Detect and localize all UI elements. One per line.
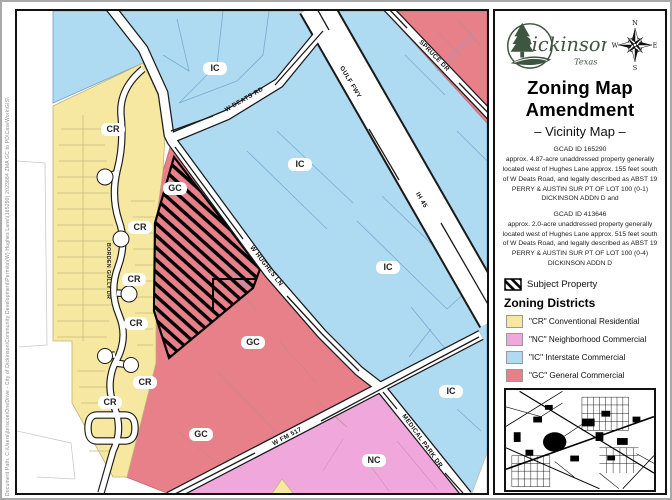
map-disclaimer: The City of Dickinson Texas makes no war… [495, 497, 665, 500]
map-title: Zoning Map Amendment [495, 77, 665, 121]
cr-color-swatch [506, 315, 523, 328]
zone-label-cr: CR [122, 273, 146, 286]
gcad-desc-1: approx. 4.87-acre unaddressed property g… [502, 155, 658, 204]
zoning-districts-header: Zoning Districts [504, 296, 665, 310]
zone-label-cr: CR [128, 221, 152, 234]
zone-label-gc: GC [241, 336, 265, 349]
legend-item-gc: "GC" General Commercial [506, 369, 665, 382]
zoning-map-page: Document Path: C:\Users\jbriscoe\OneDriv… [0, 0, 672, 500]
legend-label-cr: "CR" Conventional Residential [529, 317, 640, 326]
zone-label-cr: CR [124, 317, 148, 330]
zone-label-cr: CR [101, 123, 125, 136]
compass-n: N [632, 19, 638, 27]
compass-rose-icon: N E S W [611, 17, 659, 73]
zone-label-gc: GC [163, 182, 187, 195]
compass-w: W [612, 42, 619, 50]
road-swoosh [511, 56, 551, 65]
parcel-description-1: GCAD ID 165290 approx. 4.87-acre unaddre… [495, 146, 665, 204]
logo-city-name: Dickinson [515, 33, 607, 56]
gc-color-swatch [506, 369, 523, 382]
title-panel: Dickinson Texas [493, 9, 667, 495]
zone-label-ic: IC [288, 158, 312, 171]
legend-label-ic: "IC" Interstate Commercial [529, 353, 625, 362]
gcad-id-1: GCAD ID 165290 [502, 146, 658, 153]
gcad-desc-2: approx. 2.0-acre unaddressed property ge… [502, 220, 658, 269]
map-subtitle: – Vicinity Map – [495, 124, 665, 139]
logo-state-name: Texas [574, 56, 597, 66]
zone-label-cr: CR [133, 376, 157, 389]
legend-label-nc: "NC" Neighborhood Commercial [529, 335, 646, 344]
zone-label-gc: GC [189, 428, 213, 441]
subject-property-label: Subject Property [527, 279, 597, 290]
legend-item-ic: "IC" Interstate Commercial [506, 351, 665, 364]
road-label-borden-gully: BORDEN GULLY DR [105, 243, 111, 299]
legend-item-nc: "NC" Neighborhood Commercial [506, 333, 665, 346]
zone-label-ic: IC [203, 62, 227, 75]
subject-property-swatch [504, 278, 522, 291]
dickinson-logo: Dickinson Texas [501, 17, 607, 73]
zone-label-cr: CR [98, 396, 122, 409]
compass-s: S [633, 64, 637, 72]
vicinity-map-frame: W DEATS RD GULF FWY IH 45 SPRUCE DR W HU… [15, 9, 489, 495]
zone-label-ic: IC [439, 385, 463, 398]
parcel-description-2: GCAD ID 413646 approx. 2.0-acre unaddres… [495, 211, 665, 269]
ic-color-swatch [506, 351, 523, 364]
nc-color-swatch [506, 333, 523, 346]
legend-label-gc: "GC" General Commercial [529, 371, 624, 380]
zone-label-nc: NC [362, 454, 386, 467]
legend-subject-property: Subject Property [504, 278, 665, 291]
gcad-id-2: GCAD ID 413646 [502, 211, 658, 218]
legend-item-cr: "CR" Conventional Residential [506, 315, 665, 328]
zone-label-ic: IC [376, 261, 400, 274]
compass-e: E [653, 42, 658, 50]
locator-inset-map [504, 388, 656, 492]
vicinity-map: W DEATS RD GULF FWY IH 45 SPRUCE DR W HU… [17, 11, 487, 493]
document-path-watermark: Document Path: C:\Users\jbriscoe\OneDriv… [5, 8, 11, 496]
